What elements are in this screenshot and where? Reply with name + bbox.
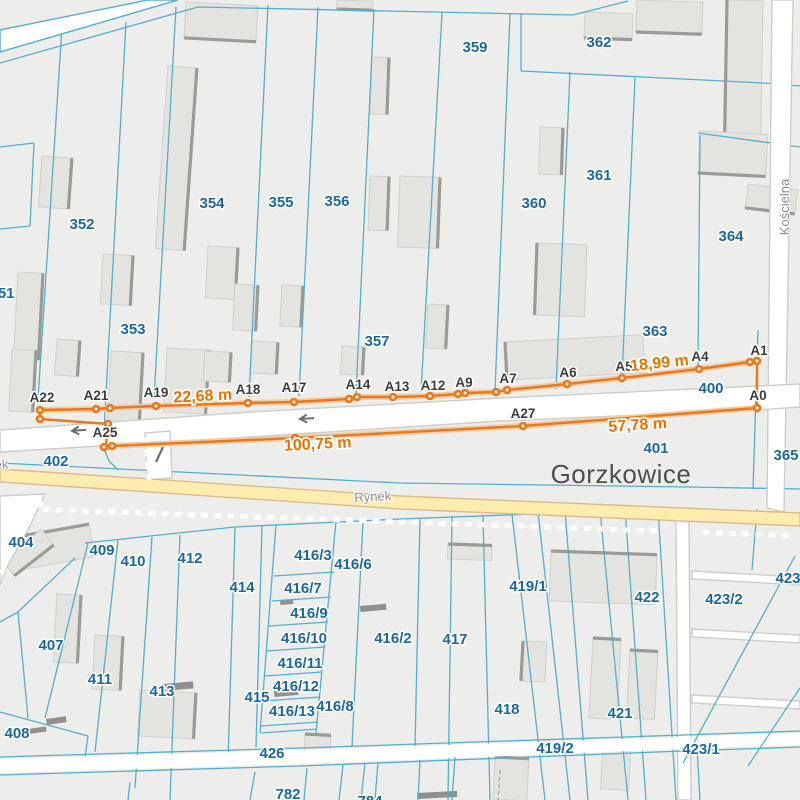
distance-label: 100,75 m — [284, 434, 352, 455]
survey-point-label-A22: A22 — [30, 390, 55, 405]
survey-point-label-A0: A0 — [749, 388, 766, 403]
parcel-label-365: 365 — [773, 447, 798, 464]
survey-point-hole — [756, 360, 759, 363]
parcel-label-400: 400 — [698, 380, 723, 397]
road-dash-marking — [782, 533, 789, 538]
building-footprint — [107, 351, 143, 427]
survey-point-label-A17: A17 — [282, 380, 307, 395]
street-label: Rynek — [354, 488, 392, 505]
survey-point-hole — [464, 392, 467, 395]
building — [341, 346, 364, 375]
survey-point-label-A14: A14 — [346, 377, 371, 392]
building-footprint — [538, 127, 563, 175]
distance-label: 22,68 m — [173, 386, 233, 406]
parcel-label-407: 407 — [38, 637, 63, 654]
parcel-label-419-2: 419/2 — [536, 740, 574, 757]
building-shadow-edge — [561, 128, 563, 175]
building — [398, 176, 440, 248]
road-dash-marking — [650, 528, 657, 533]
road-dash-marking — [161, 511, 168, 516]
survey-point-A0[interactable] — [753, 404, 762, 413]
road-dash-marking — [610, 527, 617, 532]
building-shadow-edge — [363, 347, 364, 375]
parcel-label-359: 359 — [462, 39, 487, 56]
survey-point-hole — [39, 418, 42, 421]
building-footprint — [38, 156, 71, 209]
survey-point-label-A13: A13 — [385, 379, 410, 394]
road-dash-marking — [214, 513, 221, 518]
survey-point-hole — [356, 396, 359, 399]
parcel-label-412: 412 — [177, 550, 202, 567]
building — [205, 246, 238, 299]
building-footprint — [636, 0, 703, 34]
survey-point-A6[interactable] — [563, 380, 572, 389]
road-dash-marking — [623, 527, 630, 532]
building — [447, 544, 491, 561]
building — [337, 0, 373, 10]
road-dash-marking — [478, 522, 485, 527]
parcel-label-416-8: 416/8 — [316, 698, 354, 715]
survey-point-label-A12: A12 — [421, 378, 446, 393]
survey-point-hole — [39, 409, 42, 412]
road-dash-marking — [148, 511, 155, 516]
parcel-label-404: 404 — [8, 534, 34, 551]
road-dash-marking — [359, 518, 366, 523]
parcel-label-416-11: 416/11 — [277, 655, 322, 672]
building-shadow-edge — [448, 544, 492, 546]
survey-point-hole — [495, 391, 498, 394]
survey-point-label-A21: A21 — [84, 388, 109, 403]
survey-point-A17[interactable] — [290, 398, 299, 407]
parcel-label-416-10: 416/10 — [281, 630, 327, 647]
building — [725, 0, 763, 136]
road-dash-marking — [768, 532, 775, 537]
road-dash-marking — [135, 510, 142, 515]
parcel-label-362: 362 — [586, 34, 611, 51]
building — [636, 0, 703, 34]
building — [250, 341, 278, 374]
survey-point-hole — [522, 425, 525, 428]
parcel-label-355: 355 — [268, 194, 293, 211]
building — [203, 351, 231, 382]
survey-point[interactable] — [108, 442, 117, 451]
road-dash-marking — [122, 510, 129, 515]
road-dash-marking — [755, 532, 762, 537]
road-dash-marking — [320, 517, 327, 522]
map-viewport[interactable]: A22A21A19A18A17A14A13A12A9A7A6A5A4A1A0A2… — [0, 0, 800, 800]
survey-point[interactable] — [503, 386, 512, 395]
parcel-label-364: 364 — [718, 228, 744, 245]
road-dash-marking — [227, 513, 234, 518]
survey-point-A18[interactable] — [244, 399, 253, 408]
building-footprint — [203, 351, 231, 382]
road-dash-marking — [702, 530, 709, 535]
survey-point-hole — [429, 395, 432, 398]
survey-point-A5[interactable] — [618, 374, 627, 383]
parcel-label-416-2: 416/2 — [374, 630, 412, 647]
building-footprint — [341, 346, 364, 375]
survey-point-hole — [506, 389, 509, 392]
survey-point-label-A27: A27 — [511, 406, 536, 421]
parcel-label-423: 423 — [775, 570, 800, 587]
parcel-label-351: 351 — [0, 285, 15, 302]
road-dash-marking — [254, 514, 261, 519]
survey-point-label-A4: A4 — [691, 349, 709, 364]
road-dash-marking — [636, 528, 643, 533]
road-dash-marking — [518, 524, 525, 529]
building-footprint — [280, 285, 303, 327]
parcel-label-361: 361 — [586, 167, 611, 184]
parcel-label-413: 413 — [149, 683, 174, 700]
road-dash-marking — [240, 514, 247, 519]
building — [107, 351, 143, 427]
survey-point-label-A18: A18 — [236, 382, 261, 397]
survey-point-hole — [155, 405, 158, 408]
parcel-label-402: 402 — [43, 453, 68, 470]
parcel-label-401: 401 — [643, 440, 668, 457]
survey-point[interactable] — [106, 404, 115, 413]
road-dash-marking — [201, 512, 208, 517]
parcel-label-409: 409 — [89, 542, 114, 559]
parcel-label-418: 418 — [494, 701, 519, 718]
road-dash-marking — [412, 520, 419, 525]
building — [280, 285, 303, 327]
road-dash-marking — [108, 509, 115, 514]
parcel-label-421: 421 — [607, 705, 632, 722]
parcel-label-357: 357 — [364, 333, 389, 350]
road-dash-marking — [438, 521, 445, 526]
building-footprint — [205, 246, 238, 299]
survey-point-label-A19: A19 — [144, 385, 169, 400]
survey-point-A27[interactable] — [519, 422, 528, 431]
parcel-label-410: 410 — [120, 553, 145, 570]
road-dash-marking — [570, 525, 577, 530]
survey-point-hole — [348, 398, 351, 401]
road-dash-marking — [306, 516, 313, 521]
road-dash-marking — [42, 507, 49, 512]
road-dash-marking — [465, 522, 472, 527]
parcel-label-419-1: 419/1 — [509, 578, 547, 595]
town-label: Gorzkowice — [551, 459, 692, 489]
road-dash-marking — [372, 518, 379, 523]
survey-point-hole — [95, 408, 98, 411]
road-connector-south — [676, 521, 691, 800]
parcel-label-363: 363 — [642, 323, 667, 340]
building-shadow-edge — [387, 177, 389, 231]
building — [521, 641, 547, 682]
road-dash-marking — [452, 521, 459, 526]
survey-point[interactable] — [353, 393, 362, 402]
road-dash-marking — [544, 524, 551, 529]
road-dash-marking — [399, 519, 406, 524]
survey-point-label-A7: A7 — [499, 371, 516, 386]
building-shadow-edge — [387, 58, 389, 115]
building-footprint — [398, 176, 440, 248]
parcel-label-784: 784 — [357, 793, 383, 800]
building — [368, 176, 389, 231]
parcel-label-415: 415 — [244, 689, 269, 706]
road-dash-marking — [346, 518, 353, 523]
survey-point-hole — [293, 401, 296, 404]
parcel-label-426: 426 — [259, 745, 284, 762]
parcel-label-352: 352 — [69, 216, 94, 233]
street-label: Kościelna — [777, 178, 792, 235]
building-shadow-edge — [630, 650, 658, 651]
parcel-label-423-2: 423/2 — [705, 591, 743, 608]
parcel-label-416-3: 416/3 — [294, 547, 332, 564]
building-shadow-edge — [305, 734, 331, 735]
building-footprint — [521, 641, 547, 682]
survey-point-hole — [111, 445, 114, 448]
road-dash-marking — [147, 474, 152, 481]
parcel-label-360: 360 — [521, 195, 546, 212]
parcel-label-416-6: 416/6 — [334, 556, 372, 573]
road-dash-marking — [742, 531, 749, 536]
survey-point-label-A25: A25 — [93, 425, 118, 440]
street-label: Rynek — [0, 456, 9, 474]
survey-point-hole — [247, 402, 250, 405]
parcel-label-416-9: 416/9 — [290, 605, 328, 622]
building — [426, 304, 448, 349]
building-footprint — [100, 254, 133, 306]
survey-point-A22[interactable] — [36, 406, 45, 415]
survey-point[interactable] — [100, 443, 109, 452]
road-dash-marking — [174, 512, 181, 517]
survey-point-A19[interactable] — [152, 402, 161, 411]
survey-point-hole — [457, 393, 460, 396]
building — [54, 339, 79, 377]
road-dash-marking — [729, 531, 736, 536]
survey-point[interactable] — [36, 415, 45, 424]
survey-point-A9[interactable] — [454, 390, 463, 399]
road-dash-marking — [267, 515, 274, 520]
survey-point-hole — [109, 407, 112, 410]
road-dash-marking — [504, 523, 511, 528]
road-dash-marking — [584, 526, 591, 531]
survey-point-hole — [392, 396, 395, 399]
road-dash-marking — [333, 517, 340, 522]
survey-point-label-A9: A9 — [455, 375, 472, 390]
survey-point-hole — [103, 446, 106, 449]
parcel-label-417: 417 — [442, 631, 467, 648]
survey-point-A4[interactable] — [695, 365, 704, 374]
building-shadow-edge — [521, 641, 523, 681]
survey-point-hole — [621, 377, 624, 380]
parcel-label-354: 354 — [199, 195, 225, 212]
road-dash-marking — [82, 508, 89, 513]
building-footprint — [725, 0, 763, 136]
survey-point-A7[interactable] — [492, 388, 501, 397]
building-footprint — [54, 339, 79, 377]
survey-point-A21[interactable] — [92, 405, 101, 414]
parcel-label-356: 356 — [324, 193, 349, 210]
parcel-label-408: 408 — [4, 725, 29, 742]
road-dash-marking — [56, 507, 63, 512]
parcel-label-422: 422 — [634, 589, 659, 606]
building — [538, 127, 563, 175]
parcel-label-411: 411 — [88, 671, 112, 688]
building — [370, 57, 389, 115]
parcel-label-782: 782 — [275, 786, 300, 800]
road-dash-marking — [95, 509, 102, 514]
road-dash-marking — [69, 508, 76, 513]
road-dash-marking — [531, 524, 538, 529]
road-dash-marking — [146, 462, 151, 469]
parcel-label-416-7: 416/7 — [284, 580, 322, 597]
road-dash-marking — [557, 525, 564, 530]
building — [13, 272, 43, 360]
building — [38, 156, 71, 209]
road-dash-marking — [280, 515, 287, 520]
road-dash-marking — [386, 519, 393, 524]
road-dash-marking — [188, 512, 195, 517]
parcel-label-423-1: 423/1 — [682, 741, 720, 758]
parcel-label-416-12: 416/12 — [273, 678, 319, 695]
building-shadow-edge — [229, 352, 231, 382]
survey-point-label-A1: A1 — [750, 343, 768, 358]
parcel-label-416-13: 416/13 — [269, 703, 315, 720]
road-dash-marking — [597, 526, 604, 531]
survey-point-hole — [756, 407, 759, 410]
survey-point-A14[interactable] — [345, 395, 354, 404]
cadastral-map-canvas[interactable]: A22A21A19A18A17A14A13A12A9A7A6A5A4A1A0A2… — [0, 0, 800, 800]
survey-point-label-A6: A6 — [559, 365, 577, 380]
road-dash-marking — [491, 523, 498, 528]
survey-point-hole — [749, 361, 752, 364]
building — [100, 254, 133, 306]
road-dash-marking — [145, 450, 150, 457]
road-dash-marking — [293, 516, 300, 521]
parcel-label-414: 414 — [229, 579, 255, 596]
road-dash-marking — [425, 520, 432, 525]
survey-point-hole — [566, 383, 569, 386]
road-dash-marking — [716, 530, 723, 535]
building-shadow-edge — [593, 638, 621, 639]
survey-point-hole — [698, 368, 701, 371]
building-shadow-edge — [276, 342, 278, 374]
parcel-label-353: 353 — [120, 321, 145, 338]
building-footprint — [250, 341, 278, 374]
